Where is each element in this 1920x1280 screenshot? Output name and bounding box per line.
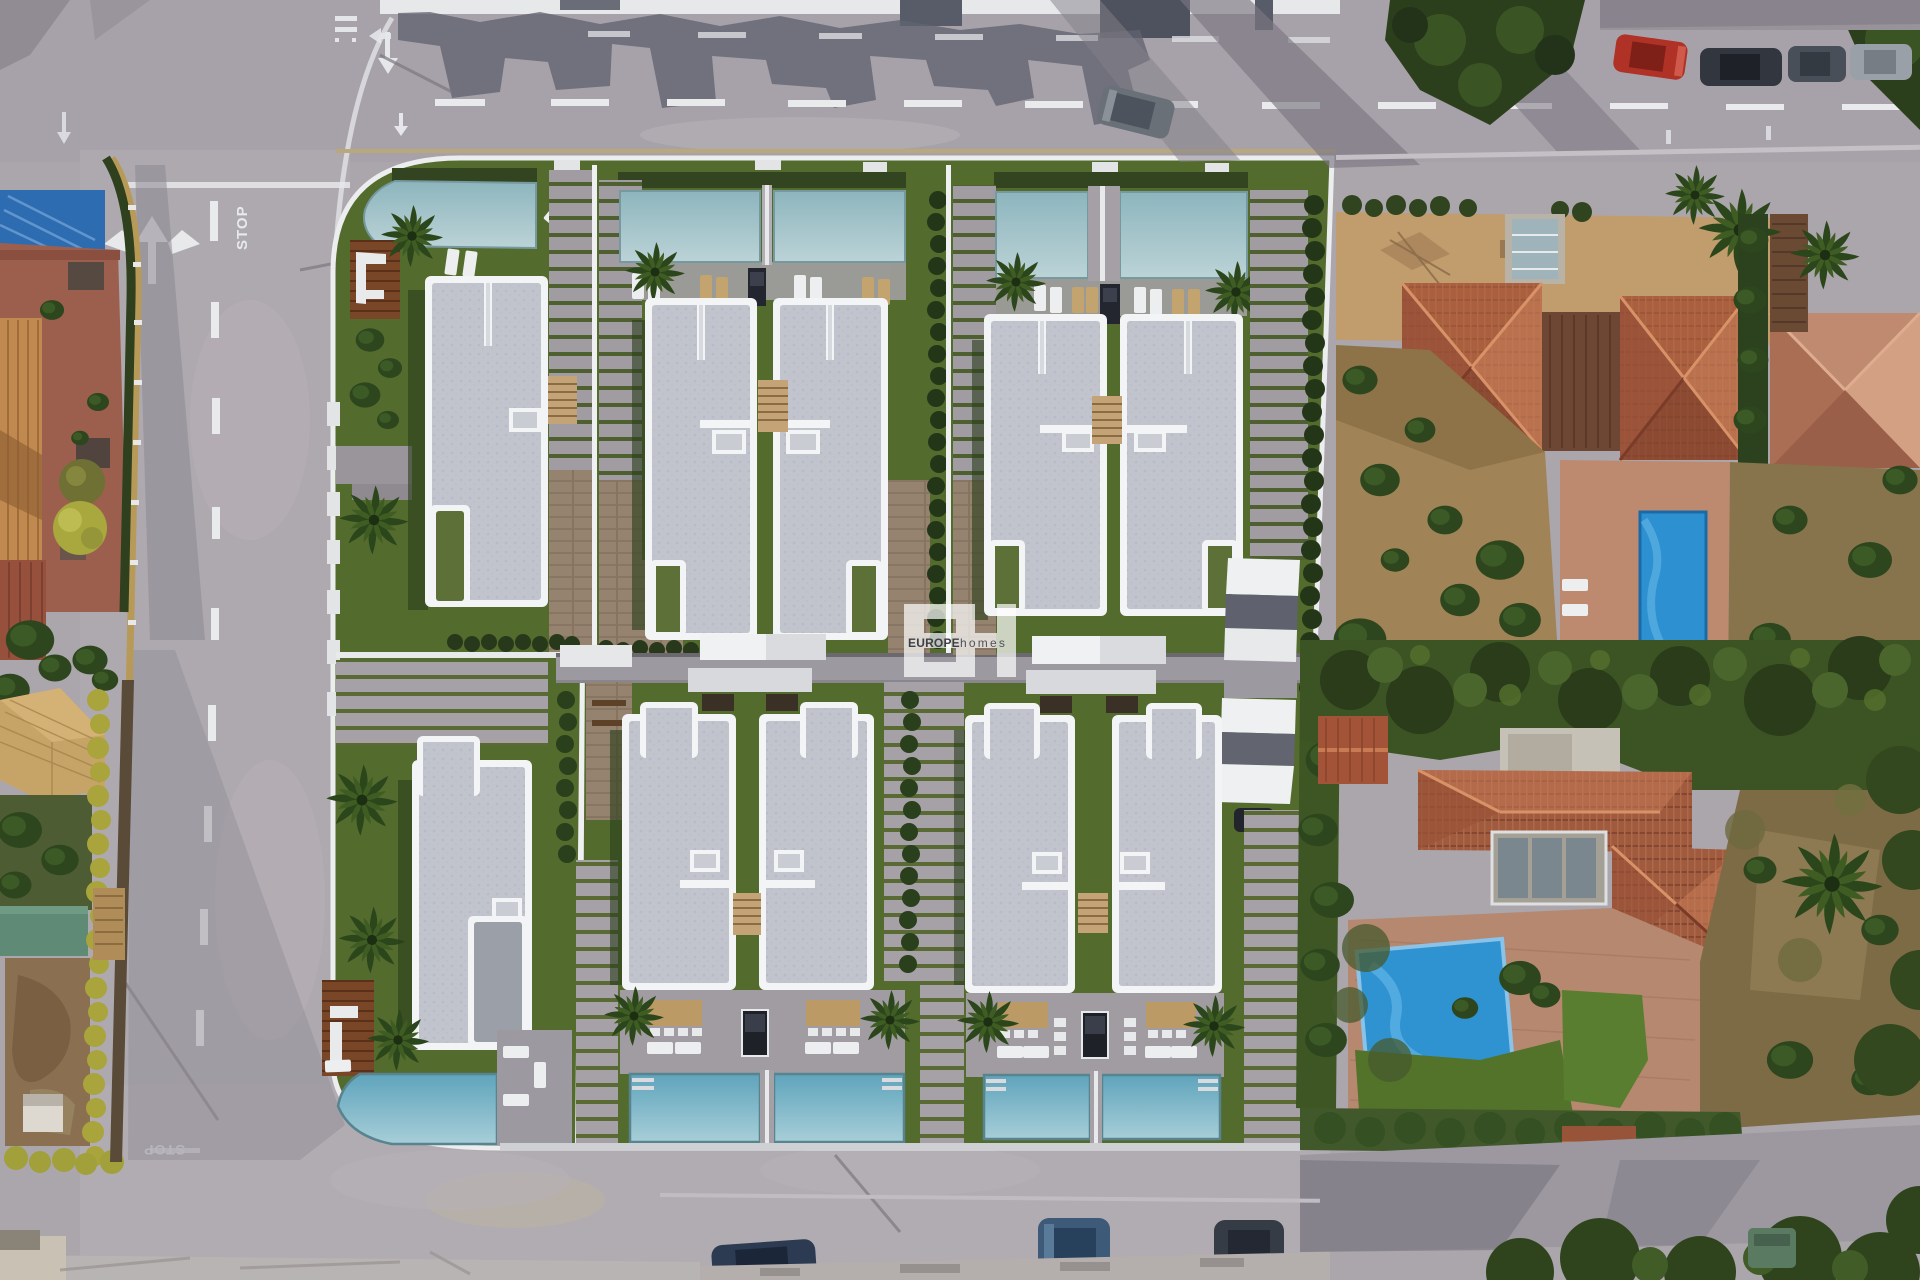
svg-text:homes: homes — [960, 636, 1007, 650]
svg-text:EUROPE: EUROPE — [908, 636, 960, 650]
svg-text:STOP: STOP — [234, 205, 251, 250]
